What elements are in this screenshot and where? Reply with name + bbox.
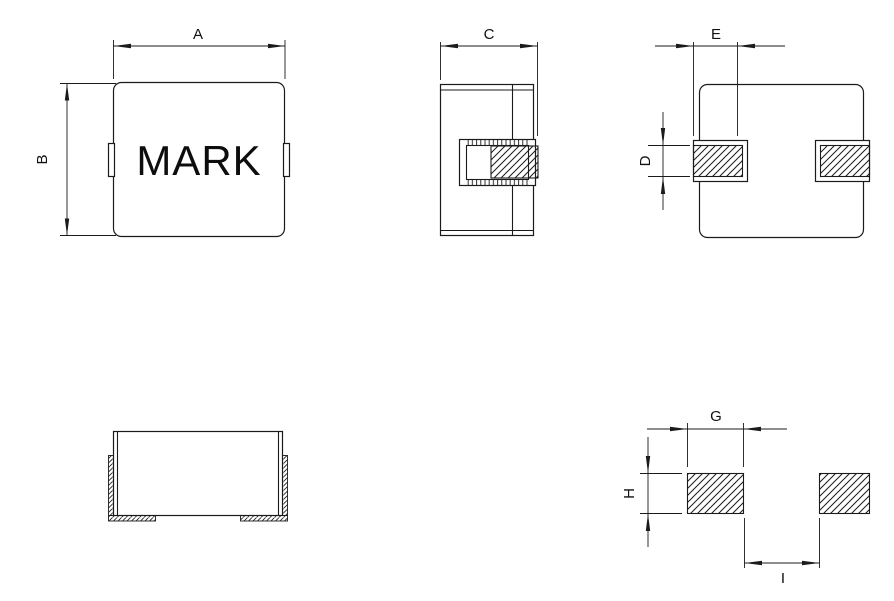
- dim-h-arrow-top: [646, 456, 650, 474]
- dim-i-label: I: [781, 570, 785, 587]
- dim-d-arrow-bottom: [661, 177, 665, 195]
- dimension-drawing: MARK A B C: [0, 0, 894, 601]
- elevation-right-terminal-side: [283, 456, 288, 516]
- dim-e-label: E: [711, 26, 721, 43]
- bottom-view-left-pad-hatch: [694, 146, 743, 177]
- dim-b-label: B: [34, 154, 51, 164]
- dim-g-arrow-left: [670, 427, 688, 431]
- dim-c-arrow-right: [520, 44, 538, 48]
- dim-d-arrow-top: [661, 128, 665, 146]
- dim-g-arrow-right: [744, 427, 762, 431]
- dim-g-label: G: [710, 408, 722, 425]
- dimension-d: D: [637, 112, 690, 210]
- dim-h-label: H: [621, 488, 638, 499]
- dim-b-arrow-top: [65, 84, 69, 101]
- elevation-left-terminal-side: [109, 456, 114, 516]
- dim-a-label: A: [193, 26, 203, 43]
- dimension-b: B: [34, 84, 116, 236]
- front-view-right-terminal-tab: [284, 144, 290, 177]
- side-view-terminal-hatch: [491, 146, 538, 178]
- front-view-left-terminal-tab: [109, 144, 115, 177]
- front-elevation-view: [109, 432, 288, 522]
- land-pattern-right-pad: [820, 474, 870, 514]
- elevation-left-terminal-bottom: [109, 516, 156, 522]
- dim-a-arrow-left: [114, 44, 132, 48]
- dim-h-arrow-bottom: [646, 514, 650, 532]
- dim-e-arrow-right: [738, 44, 756, 48]
- mark-text: MARK: [136, 137, 261, 184]
- land-pattern-left-pad: [688, 474, 744, 514]
- dimension-a: A: [114, 26, 286, 79]
- side-view-crimp-bottom: [467, 180, 529, 186]
- dim-a-arrow-right: [268, 44, 285, 48]
- dimension-i: I: [745, 518, 820, 587]
- dimension-g: G: [647, 408, 787, 467]
- elevation-right-terminal-bottom: [241, 516, 288, 522]
- dimension-h: H: [621, 437, 682, 547]
- dim-c-label: C: [484, 26, 495, 43]
- dim-c-arrow-left: [441, 44, 459, 48]
- dim-b-arrow-bottom: [65, 219, 69, 236]
- dim-i-arrow-right: [802, 561, 820, 565]
- elevation-body: [114, 432, 283, 516]
- dim-d-label: D: [637, 155, 654, 166]
- side-view-crimp-top: [467, 140, 529, 146]
- dim-i-arrow-left: [745, 561, 763, 565]
- bottom-view-right-pad-hatch: [821, 146, 870, 177]
- front-view: MARK A B: [34, 26, 290, 237]
- bottom-view: E D: [637, 26, 870, 238]
- dim-e-arrow-left: [676, 44, 694, 48]
- land-pattern-view: G H I: [621, 408, 870, 587]
- side-view: C: [441, 26, 539, 236]
